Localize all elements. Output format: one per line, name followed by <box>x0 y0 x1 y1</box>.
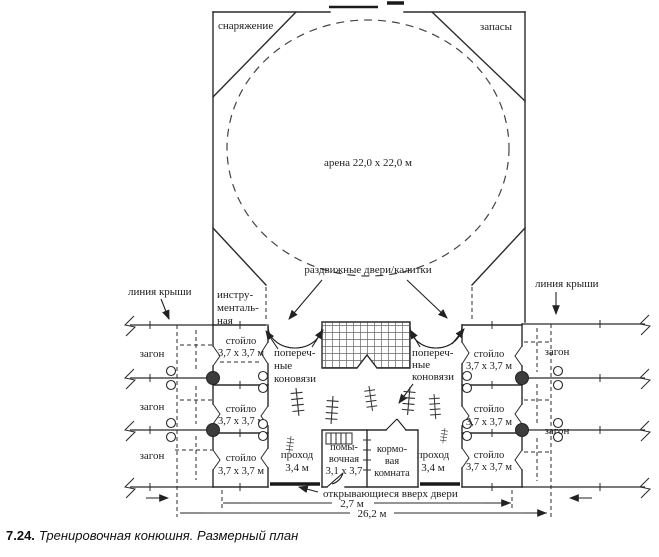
arena-swing-doors-right <box>410 326 462 348</box>
pen-right-1: загон <box>545 346 570 358</box>
roof-line-right-label: линия крыши <box>535 278 599 290</box>
stall-l3-name: стойло <box>226 453 256 464</box>
floor-plan-svg: снаряжение запасы арена 22,0 x 22,0 м ра… <box>0 0 659 557</box>
feed-room-door <box>386 419 406 430</box>
service-rooms: помы- вочная 3,1 x 3,7 кормо- вая комнат… <box>322 419 418 487</box>
right-corner-diagonal-wall <box>472 228 525 285</box>
dimension-chain: открывающиеся вверх двери 2,7 м 26,2 м <box>146 487 592 520</box>
arena-label: арена 22,0 x 22,0 м <box>324 157 412 169</box>
up-doors-arrow <box>299 487 318 492</box>
pen-right-2: загон <box>545 425 570 437</box>
cross-ties-right-1: попереч- <box>412 347 454 359</box>
feed-room-2: вая <box>385 456 399 467</box>
washing-room-1: помы- <box>330 442 358 453</box>
figure-7-24: снаряжение запасы арена 22,0 x 22,0 м ра… <box>0 0 659 557</box>
left-pen-detail <box>175 330 212 480</box>
aisle-left-name: проход <box>281 449 314 461</box>
pens-right: загон загон <box>522 315 650 517</box>
pen-left-1: загон <box>140 348 165 360</box>
right-fence-lines <box>522 324 645 487</box>
stall-block-left: стойло 3,7 x 3,7 м стойло 3,7 x 3,7 м ст… <box>207 321 269 491</box>
aisle-right-size: 3,4 м <box>421 462 445 474</box>
washing-room-2: вочная <box>329 454 359 465</box>
riding-circle <box>227 20 509 276</box>
stall-l3-size: 3,7 x 3,7 м <box>218 466 264 477</box>
supplies-room-label: запасы <box>480 21 513 33</box>
equipment-room-label: снаряжение <box>218 20 273 32</box>
tool-room-diagonal-wall <box>213 228 266 285</box>
sliding-doors-label: раздвижные двери/калитки <box>304 264 431 276</box>
grooming-area <box>322 322 410 368</box>
caption-number: 7.24. <box>6 528 35 543</box>
aisle-right-name: проход <box>417 449 450 461</box>
stall-r3-size: 3,7 x 3,7 м <box>466 462 512 473</box>
mid-annotations: раздвижные двери/калитки линия крыши лин… <box>128 264 599 327</box>
stall-r1-size: 3,7 x 3,7 м <box>466 361 512 372</box>
cross-ties-right-3: коновязи <box>412 371 454 383</box>
dim-total-label: 26,2 м <box>358 508 387 520</box>
pens-left: загон загон загон <box>125 316 213 517</box>
feed-room-1: кормо- <box>377 444 408 455</box>
stall-l1-name: стойло <box>226 336 256 347</box>
tool-room-label-1: инстру- <box>217 289 253 301</box>
stall-r1-name: стойло <box>474 349 504 360</box>
stall-l1-size: 3,7 x 3,7 м <box>218 348 264 359</box>
cross-ties-right-2: ные <box>412 359 430 371</box>
feed-room-3: комната <box>374 468 410 479</box>
washing-room-3: 3,1 x 3,7 <box>326 466 363 477</box>
cross-ties-left-1: попереч- <box>274 347 316 359</box>
cross-ties-left-2: ные <box>274 360 292 372</box>
stall-l2-size: 3,7 x 3,7 м <box>218 416 264 427</box>
cross-ties-left-3: коновязи <box>274 373 316 385</box>
roof-line-left-arrow <box>161 299 169 319</box>
grooming-block <box>322 322 410 368</box>
caption-title: Тренировочная конюшня. Размерный план <box>39 528 298 543</box>
figure-caption: 7.24.Тренировочная конюшня. Размерный пл… <box>6 528 646 543</box>
roof-line-left-label: линия крыши <box>128 286 192 298</box>
pen-left-3: загон <box>140 450 165 462</box>
sliding-door-arrow-right <box>407 280 447 318</box>
arena-building: снаряжение запасы арена 22,0 x 22,0 м <box>213 3 525 325</box>
stall-r3-name: стойло <box>474 450 504 461</box>
stall-block-right: стойло 3,7 x 3,7 м стойло 3,7 x 3,7 м ст… <box>462 321 529 491</box>
stall-l2-name: стойло <box>226 404 256 415</box>
stall-r2-size: 3,7 x 3,7 м <box>466 417 512 428</box>
stall-r2-name: стойло <box>474 404 504 415</box>
aisle-left-size: 3,4 м <box>285 462 309 474</box>
tool-room-label-2: менталь- <box>217 302 259 314</box>
sliding-door-arrow-left <box>289 280 322 319</box>
pen-left-2: загон <box>140 401 165 413</box>
